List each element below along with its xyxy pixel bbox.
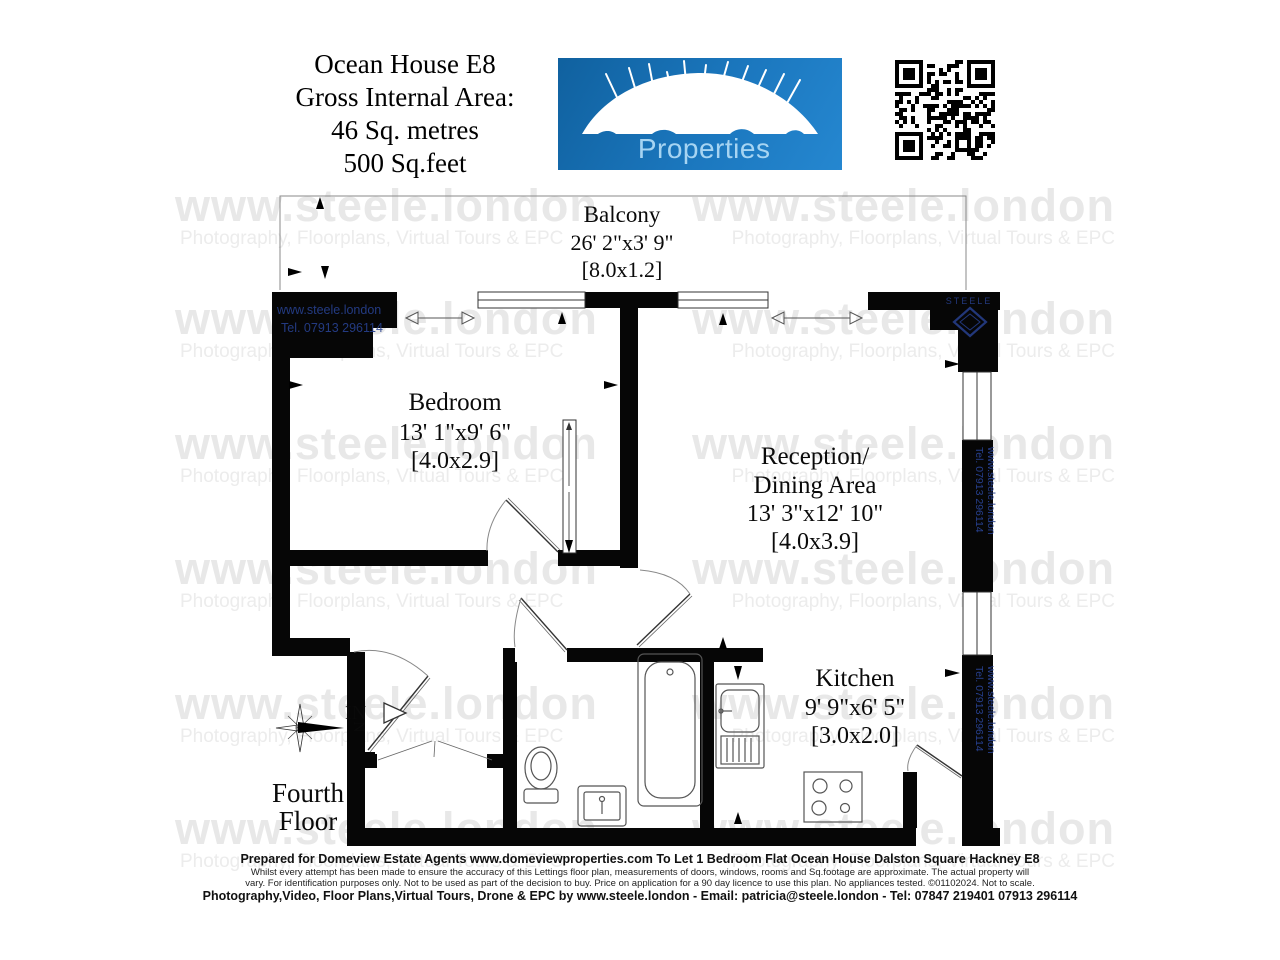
bedroom-dims-metric: [4.0x2.9]: [411, 448, 499, 474]
footer-contact-line: Photography,Video, Floor Plans,Virtual T…: [0, 889, 1280, 904]
wall-brand-site: www.steele.london: [276, 303, 381, 317]
bedroom-label: Bedroom: [408, 389, 502, 416]
entrance-arrow-icon: [384, 703, 406, 723]
title-line-sqm: 46 Sq. metres: [250, 114, 560, 147]
domeview-logo: Domeview Properties: [558, 58, 842, 170]
logo-brand-secondary: [630, 133, 638, 164]
toilet: [524, 747, 558, 803]
property-title: Ocean House E8 Gross Internal Area: 46 S…: [250, 48, 560, 180]
floor-label-1: Fourth: [272, 778, 345, 808]
hob: [804, 772, 862, 822]
walls: [272, 292, 1000, 846]
logo-brand-secondary-text: Properties: [638, 133, 771, 164]
windows: [478, 292, 991, 655]
balcony-dims-imperial: 26' 2"x3' 9": [571, 230, 674, 255]
logo-brand-primary: Domeview: [629, 101, 772, 132]
bathtub: [638, 654, 702, 806]
bedroom-dims-imperial: 13' 1"x9' 6": [399, 420, 511, 446]
reception-door: [637, 594, 690, 645]
wall-brand-vertical-upper: www.steele.london Tel. 07913 296114: [973, 446, 997, 535]
reception-label-1: Reception/: [761, 443, 869, 470]
wall-brand-tel: Tel. 07913 296114: [281, 321, 383, 335]
wall-brand-vertical-lower: www.steele.london Tel. 07913 296114: [973, 665, 997, 754]
balcony-label: Balcony: [584, 202, 661, 227]
basin: [578, 786, 626, 826]
bathroom-door: [521, 598, 567, 650]
wall-brand-site-v: www.steele.london: [985, 665, 997, 754]
footer-prepared-line: Prepared for Domeview Estate Agents www.…: [0, 852, 1280, 867]
kitchen-door: [917, 745, 962, 776]
entrance-label: IN: [345, 702, 366, 724]
wall-brand-site-v: www.steele.london: [985, 446, 997, 535]
reception-dims-metric: [4.0x3.9]: [771, 529, 859, 555]
reception-label-2: Dining Area: [754, 472, 877, 499]
title-line-sqft: 500 Sq.feet: [250, 147, 560, 180]
cupboard-door: [378, 741, 432, 760]
kitchen-label: Kitchen: [815, 665, 895, 692]
title-line-address: Ocean House E8: [250, 48, 560, 81]
balcony-dims-metric: [8.0x1.2]: [582, 257, 663, 282]
kitchen-sink: [716, 684, 764, 768]
steele-corner-text: STEELE: [946, 296, 993, 306]
bedroom-door: [506, 500, 558, 552]
floorplan-page: www.steele.londonwww.steele.london Photo…: [0, 0, 1280, 960]
reception-dims-imperial: 13' 3"x12' 10": [747, 501, 883, 527]
floor-label-2: Floor: [279, 806, 338, 836]
title-line-gia: Gross Internal Area:: [250, 81, 560, 114]
logo-wordmark: Domeview Properties: [558, 101, 842, 165]
footer-disclaimer-2: vary. For identification purposes only. …: [0, 878, 1280, 889]
footer: Prepared for Domeview Estate Agents www.…: [0, 852, 1280, 904]
kitchen-dims-imperial: 9' 9"x6' 5": [805, 695, 905, 721]
wardrobe: [563, 420, 576, 553]
kitchen-dims-metric: [3.0x2.0]: [811, 723, 899, 749]
footer-disclaimer-1: Whilst every attempt has been made to en…: [0, 867, 1280, 878]
wall-brand-tel-v: Tel. 07913 296114: [973, 666, 985, 752]
cupboard-door: [438, 741, 492, 760]
wall-brand-tel-v: Tel. 07913 296114: [973, 447, 985, 533]
qr-code: [895, 60, 995, 160]
